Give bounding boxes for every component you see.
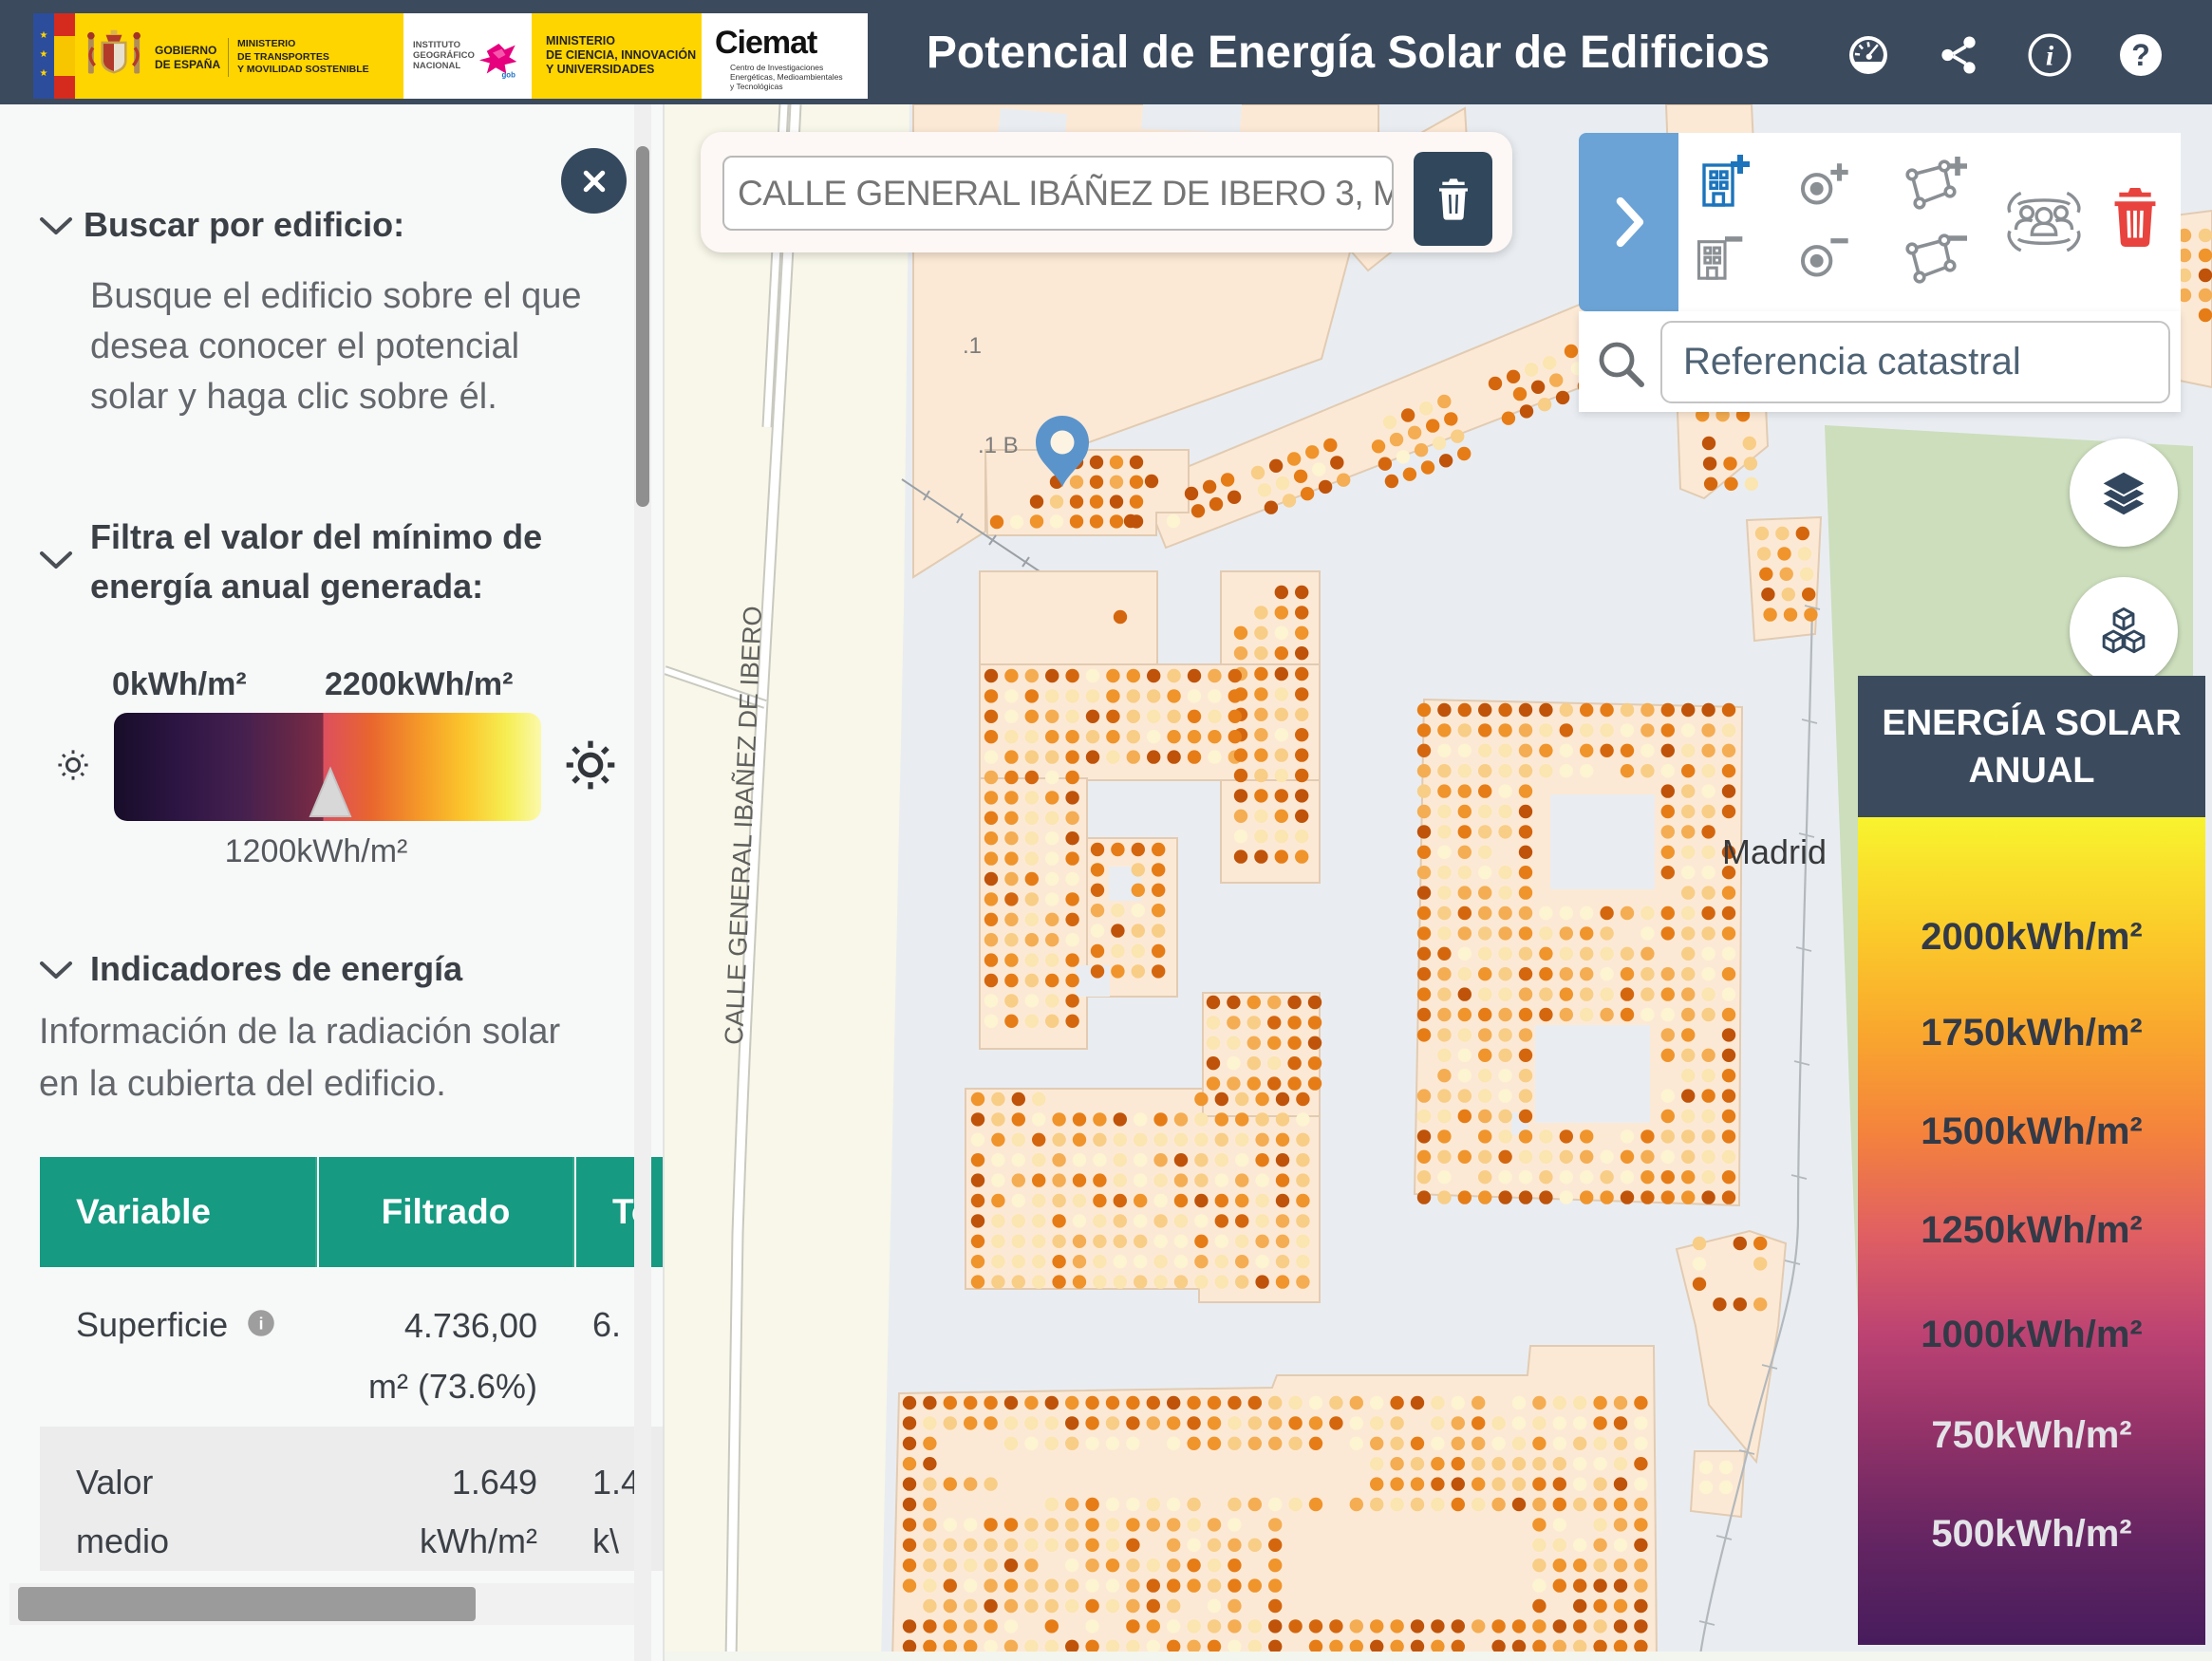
svg-text:gob: gob xyxy=(502,70,516,79)
svg-text:.1 B: .1 B xyxy=(978,433,1019,458)
svg-text:?: ? xyxy=(2131,38,2150,72)
svg-text:i: i xyxy=(259,1314,264,1333)
svg-text:Madrid: Madrid xyxy=(1722,832,1827,871)
svg-text:i: i xyxy=(2046,41,2054,72)
svg-text:.1: .1 xyxy=(963,333,982,359)
